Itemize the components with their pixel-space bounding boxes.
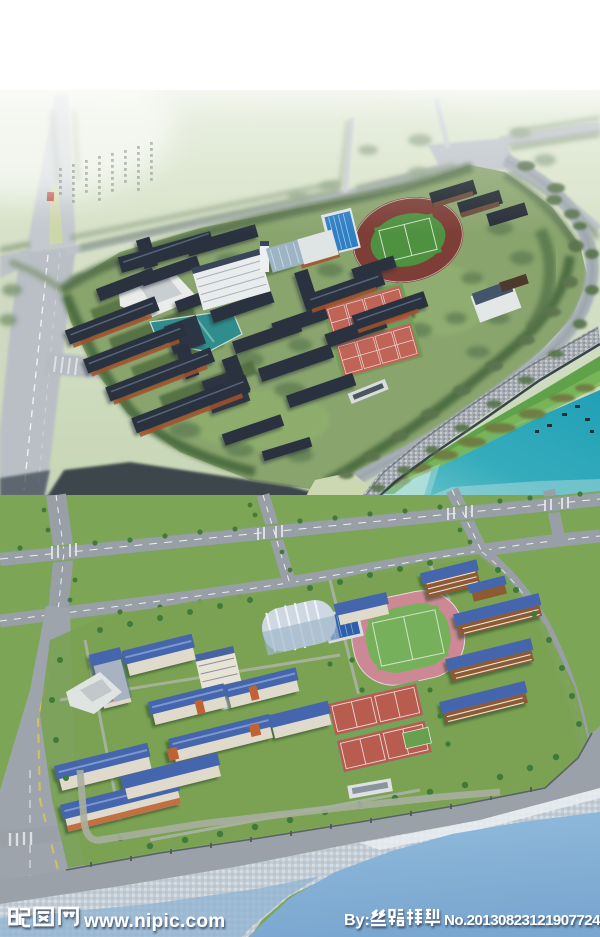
svg-text:www.nipic.com: www.nipic.com xyxy=(83,911,226,932)
svg-text:By:: By: xyxy=(344,912,370,929)
svg-text:No.201308231219077240: No.201308231219077240 xyxy=(444,912,600,929)
